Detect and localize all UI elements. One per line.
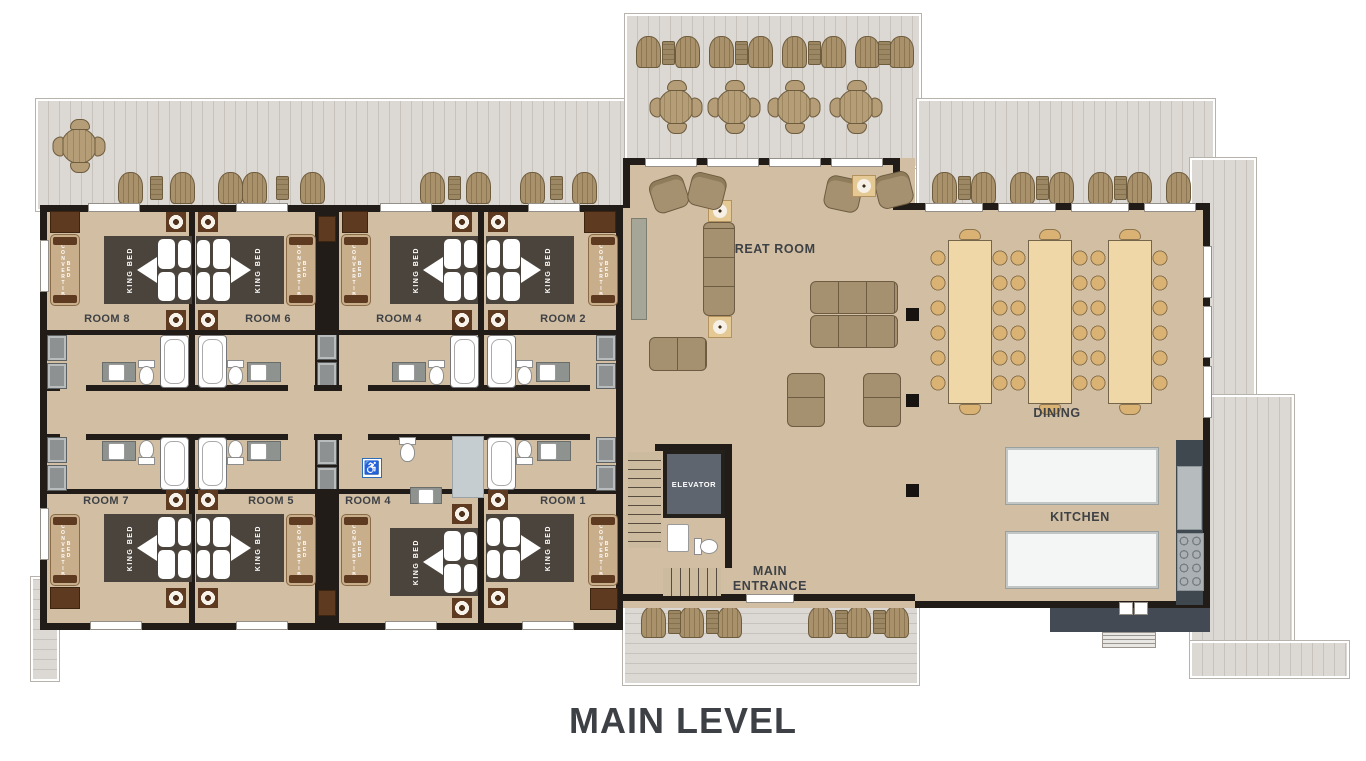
convertible-bed-label: CONVERTIBLE BED bbox=[60, 244, 71, 296]
closet bbox=[47, 437, 67, 463]
dresser bbox=[590, 588, 618, 610]
loveseat bbox=[649, 337, 707, 371]
sink bbox=[418, 489, 434, 504]
round-table bbox=[838, 89, 874, 125]
mattress: KING BED bbox=[232, 236, 284, 304]
column bbox=[906, 394, 919, 407]
window bbox=[385, 621, 437, 630]
nightstand-lamp bbox=[452, 212, 472, 232]
nightstand-lamp bbox=[166, 490, 186, 510]
floor-plan: KING BED CONVERTIBLE BED ROOM 8 KING BED… bbox=[0, 0, 1366, 761]
dining-table bbox=[1028, 240, 1072, 404]
king-bed: KING BED bbox=[196, 236, 284, 304]
deck-chair bbox=[725, 80, 745, 91]
nightstand-lamp bbox=[488, 490, 508, 510]
adirondack-chair bbox=[572, 172, 597, 204]
adirondack-chair bbox=[679, 606, 704, 638]
closet bbox=[317, 334, 337, 360]
pillows bbox=[196, 236, 211, 304]
main-entrance-line1: MAIN bbox=[753, 564, 787, 578]
convertible-bed-label: CONVERTIBLE BED bbox=[598, 244, 609, 296]
king-bed-label: KING BED bbox=[413, 539, 420, 585]
door-gap bbox=[342, 434, 368, 440]
closet bbox=[596, 335, 616, 361]
dining-chair bbox=[1039, 229, 1061, 240]
stairs bbox=[663, 568, 721, 596]
closet bbox=[596, 363, 616, 389]
side-table bbox=[706, 610, 719, 634]
closet bbox=[47, 335, 67, 361]
side-table bbox=[1114, 176, 1127, 200]
round-table bbox=[776, 89, 812, 125]
blanket-fold bbox=[521, 257, 541, 283]
blanket-fold bbox=[423, 549, 443, 575]
deck-chair bbox=[847, 80, 867, 91]
convertible-bed: CONVERTIBLE BED bbox=[588, 514, 618, 586]
pillows bbox=[177, 514, 192, 582]
king-bed: KING BED bbox=[486, 236, 574, 304]
window bbox=[236, 203, 288, 212]
adirondack-chair bbox=[1127, 172, 1152, 204]
sofa bbox=[810, 315, 898, 348]
sofa bbox=[810, 281, 898, 314]
nightstand-lamp bbox=[452, 598, 472, 618]
side-table bbox=[735, 41, 748, 65]
side-table bbox=[662, 41, 675, 65]
window bbox=[998, 203, 1056, 212]
pillows bbox=[196, 514, 211, 582]
window bbox=[90, 621, 142, 630]
side-table bbox=[1036, 176, 1049, 200]
toilet bbox=[228, 366, 243, 385]
blanket-fold bbox=[521, 535, 541, 561]
door-gap bbox=[288, 434, 314, 440]
column bbox=[906, 484, 919, 497]
blanket-fold bbox=[231, 257, 251, 283]
convertible-bed: CONVERTIBLE BED bbox=[341, 234, 371, 306]
bathtub bbox=[487, 335, 516, 388]
adirondack-chair bbox=[466, 172, 491, 204]
nightstand-lamp bbox=[488, 310, 508, 330]
roll-in-shower bbox=[452, 436, 484, 498]
wall bbox=[915, 601, 1210, 608]
room-label: ROOM 2 bbox=[540, 313, 586, 325]
nightstand-lamp bbox=[198, 212, 218, 232]
sink bbox=[540, 443, 557, 460]
adirondack-chair bbox=[821, 36, 846, 68]
window bbox=[1203, 366, 1212, 418]
round-table-set bbox=[707, 80, 761, 134]
deck-chair bbox=[750, 98, 761, 118]
main-entrance-line2: ENTRANCE bbox=[733, 579, 807, 593]
king-bed-label: KING BED bbox=[127, 525, 134, 571]
pillows bbox=[463, 528, 478, 596]
nightstand-lamp bbox=[198, 310, 218, 330]
adirondack-chair bbox=[1088, 172, 1113, 204]
sink bbox=[250, 443, 267, 460]
wc-sink bbox=[667, 524, 689, 552]
adirondack-chair bbox=[717, 606, 742, 638]
mattress: KING BED bbox=[390, 236, 442, 304]
king-bed: KING BED bbox=[196, 514, 284, 582]
convertible-bed: CONVERTIBLE BED bbox=[50, 514, 80, 586]
wc-toilet bbox=[700, 539, 718, 554]
toilet bbox=[139, 366, 154, 385]
adirondack-chair bbox=[932, 172, 957, 204]
dresser bbox=[318, 216, 336, 242]
dining-chair bbox=[1119, 404, 1141, 415]
side-table bbox=[835, 610, 848, 634]
window bbox=[40, 508, 49, 560]
room-label: ROOM 4 bbox=[345, 495, 391, 507]
main-entrance-label: MAINENTRANCE bbox=[733, 564, 807, 594]
pillows bbox=[486, 236, 501, 304]
nightstand-lamp bbox=[198, 588, 218, 608]
nightstand-lamp bbox=[166, 212, 186, 232]
deck-chair bbox=[872, 98, 883, 118]
wall bbox=[623, 158, 630, 208]
round-table-set bbox=[52, 119, 106, 173]
closet bbox=[47, 363, 67, 389]
side-table bbox=[958, 176, 971, 200]
mattress: KING BED bbox=[104, 514, 156, 582]
appliance bbox=[1177, 466, 1202, 530]
pillows bbox=[486, 514, 501, 582]
nightstand-lamp bbox=[452, 310, 472, 330]
convertible-bed-label: CONVERTIBLE BED bbox=[60, 524, 71, 576]
dining-chairs bbox=[930, 246, 946, 396]
adirondack-chair bbox=[808, 606, 833, 638]
blanket-fold bbox=[231, 535, 251, 561]
adirondack-chair bbox=[748, 36, 773, 68]
room-label: ROOM 8 bbox=[84, 313, 130, 325]
wall bbox=[46, 330, 617, 335]
nightstand-lamp bbox=[452, 504, 472, 524]
duvet bbox=[501, 236, 522, 304]
nightstand-lamp bbox=[488, 212, 508, 232]
king-bed-label: KING BED bbox=[545, 247, 552, 293]
toilet bbox=[429, 366, 444, 385]
elevator: ELEVATOR bbox=[663, 450, 725, 518]
wheelchair-icon: ♿ bbox=[362, 458, 382, 478]
bathtub bbox=[198, 437, 227, 490]
convertible-bed-label: CONVERTIBLE BED bbox=[351, 524, 362, 576]
window bbox=[707, 158, 759, 167]
mattress: KING BED bbox=[522, 514, 574, 582]
wall bbox=[46, 385, 617, 391]
dining-chairs bbox=[1152, 246, 1168, 396]
side-table bbox=[150, 176, 163, 200]
round-table-set bbox=[649, 80, 703, 134]
deck-chair bbox=[768, 98, 779, 118]
adirondack-chair bbox=[242, 172, 267, 204]
deck-chair bbox=[650, 98, 661, 118]
deck-southeast bbox=[1190, 641, 1349, 678]
adirondack-chair bbox=[884, 606, 909, 638]
king-bed: KING BED bbox=[486, 514, 574, 582]
dining-table bbox=[948, 240, 992, 404]
round-table bbox=[716, 89, 752, 125]
convertible-bed-label: CONVERTIBLE BED bbox=[296, 524, 307, 576]
duvet bbox=[156, 236, 177, 304]
adirondack-chair bbox=[1049, 172, 1074, 204]
window bbox=[88, 203, 140, 212]
bathtub bbox=[487, 437, 516, 490]
floor-title: MAIN LEVEL bbox=[0, 700, 1366, 742]
great-room-label: GREAT ROOM bbox=[724, 242, 815, 256]
deck-chair bbox=[667, 123, 687, 134]
nightstand-lamp bbox=[198, 490, 218, 510]
closet bbox=[317, 439, 337, 465]
dining-table bbox=[1108, 240, 1152, 404]
column bbox=[906, 308, 919, 321]
deck-chair bbox=[667, 80, 687, 91]
cooktop bbox=[1177, 533, 1204, 591]
convertible-bed-label: CONVERTIBLE BED bbox=[598, 524, 609, 576]
dining-label: DINING bbox=[1033, 406, 1080, 420]
closet bbox=[596, 437, 616, 463]
sink bbox=[398, 364, 415, 381]
adirondack-chair bbox=[520, 172, 545, 204]
king-bed-label: KING BED bbox=[545, 525, 552, 571]
mattress: KING BED bbox=[232, 514, 284, 582]
king-bed-label: KING BED bbox=[413, 247, 420, 293]
pillows bbox=[177, 236, 192, 304]
toilet bbox=[516, 457, 533, 465]
wall bbox=[46, 434, 617, 440]
kitchen-door bbox=[1119, 602, 1133, 615]
deck-chair bbox=[810, 98, 821, 118]
sofa bbox=[703, 222, 735, 316]
deck-chair bbox=[692, 98, 703, 118]
dresser bbox=[342, 211, 368, 233]
bathtub bbox=[160, 335, 189, 388]
convertible-bed: CONVERTIBLE BED bbox=[341, 514, 371, 586]
king-bed-label: KING BED bbox=[255, 525, 262, 571]
nightstand-lamp bbox=[166, 310, 186, 330]
deck-chair bbox=[725, 123, 745, 134]
room-label: ROOM 1 bbox=[540, 495, 586, 507]
door-gap bbox=[342, 385, 368, 391]
convertible-bed-label: CONVERTIBLE BED bbox=[296, 244, 307, 296]
adirondack-chair bbox=[420, 172, 445, 204]
deck-chair bbox=[70, 162, 90, 173]
dining-chair bbox=[959, 404, 981, 415]
window bbox=[522, 621, 574, 630]
adirondack-chair bbox=[675, 36, 700, 68]
dresser bbox=[318, 590, 336, 616]
lamp-table bbox=[708, 316, 732, 338]
adirondack-chair bbox=[782, 36, 807, 68]
adirondack-chair bbox=[846, 606, 871, 638]
toilet bbox=[400, 443, 415, 462]
door-gap bbox=[288, 385, 314, 391]
blanket-fold bbox=[137, 535, 157, 561]
armchair bbox=[787, 373, 825, 427]
round-table bbox=[658, 89, 694, 125]
prep-table bbox=[1006, 448, 1158, 504]
king-bed: KING BED bbox=[390, 528, 478, 596]
side-table bbox=[550, 176, 563, 200]
wall bbox=[46, 489, 617, 494]
adirondack-chair bbox=[118, 172, 143, 204]
adirondack-chair bbox=[300, 172, 325, 204]
duvet bbox=[442, 528, 463, 596]
kitchen-door bbox=[1134, 602, 1148, 615]
duvet bbox=[211, 236, 232, 304]
king-bed: KING BED bbox=[104, 236, 192, 304]
window bbox=[40, 240, 49, 292]
entrance-door bbox=[746, 594, 794, 603]
convertible-bed: CONVERTIBLE BED bbox=[286, 514, 316, 586]
sink bbox=[108, 364, 125, 381]
blanket-fold bbox=[423, 257, 443, 283]
deck-chair bbox=[830, 98, 841, 118]
window bbox=[1071, 203, 1129, 212]
armchair bbox=[863, 373, 901, 427]
king-bed: KING BED bbox=[104, 514, 192, 582]
duvet bbox=[442, 236, 463, 304]
window bbox=[528, 203, 580, 212]
duvet bbox=[211, 514, 232, 582]
dresser bbox=[50, 587, 80, 609]
closet bbox=[47, 465, 67, 491]
bathtub bbox=[450, 335, 479, 388]
window bbox=[769, 158, 821, 167]
toilet bbox=[227, 457, 244, 465]
lamp-table bbox=[852, 175, 876, 197]
adirondack-chair bbox=[636, 36, 661, 68]
side-table bbox=[448, 176, 461, 200]
adirondack-chair bbox=[889, 36, 914, 68]
console-table bbox=[631, 218, 647, 320]
room-label: ROOM 6 bbox=[245, 313, 291, 325]
bathtub bbox=[160, 437, 189, 490]
convertible-bed: CONVERTIBLE BED bbox=[50, 234, 80, 306]
toilet bbox=[517, 366, 532, 385]
room-label: ROOM 7 bbox=[83, 495, 129, 507]
convertible-bed-label: CONVERTIBLE BED bbox=[351, 244, 362, 296]
mattress: KING BED bbox=[390, 528, 442, 596]
window bbox=[645, 158, 697, 167]
king-bed: KING BED bbox=[390, 236, 478, 304]
pillows bbox=[463, 236, 478, 304]
room-label: ROOM 5 bbox=[248, 495, 294, 507]
side-table bbox=[873, 610, 886, 634]
adirondack-chair bbox=[1010, 172, 1035, 204]
king-bed-label: KING BED bbox=[127, 247, 134, 293]
convertible-bed: CONVERTIBLE BED bbox=[286, 234, 316, 306]
mattress: KING BED bbox=[522, 236, 574, 304]
room-label: ROOM 4 bbox=[376, 313, 422, 325]
dining-chairs bbox=[1090, 246, 1106, 396]
king-bed-label: KING BED bbox=[255, 247, 262, 293]
prep-table bbox=[1006, 532, 1158, 588]
dresser bbox=[50, 211, 80, 233]
adirondack-chair bbox=[855, 36, 880, 68]
adirondack-chair bbox=[1166, 172, 1191, 204]
toilet bbox=[138, 457, 155, 465]
dresser bbox=[584, 211, 616, 233]
steps bbox=[1102, 632, 1156, 648]
window bbox=[1144, 203, 1196, 212]
mattress: KING BED bbox=[104, 236, 156, 304]
deck-chair bbox=[70, 119, 90, 130]
adirondack-chair bbox=[170, 172, 195, 204]
dining-chair bbox=[1119, 229, 1141, 240]
deck-chair bbox=[708, 98, 719, 118]
side-table bbox=[808, 41, 821, 65]
side-table bbox=[668, 610, 681, 634]
deck-chair bbox=[95, 137, 106, 157]
side-table bbox=[878, 41, 891, 65]
adirondack-chair bbox=[641, 606, 666, 638]
window bbox=[925, 203, 983, 212]
dining-chairs bbox=[1010, 246, 1026, 396]
sink bbox=[250, 364, 267, 381]
blanket-fold bbox=[137, 257, 157, 283]
round-table bbox=[61, 128, 97, 164]
round-table-set bbox=[829, 80, 883, 134]
window bbox=[380, 203, 432, 212]
kitchen-label: KITCHEN bbox=[1050, 510, 1110, 524]
convertible-bed: CONVERTIBLE BED bbox=[588, 234, 618, 306]
window bbox=[831, 158, 883, 167]
sink bbox=[108, 443, 125, 460]
sink bbox=[539, 364, 556, 381]
deck-chair bbox=[785, 123, 805, 134]
bathtub bbox=[198, 335, 227, 388]
duvet bbox=[501, 514, 522, 582]
closet bbox=[596, 465, 616, 491]
adirondack-chair bbox=[971, 172, 996, 204]
adirondack-chair bbox=[218, 172, 243, 204]
window bbox=[1203, 246, 1212, 298]
nightstand-lamp bbox=[166, 588, 186, 608]
nightstand-lamp bbox=[488, 588, 508, 608]
deck-chair bbox=[785, 80, 805, 91]
dining-chairs bbox=[1072, 246, 1088, 396]
window bbox=[1203, 306, 1212, 358]
dining-chairs bbox=[992, 246, 1008, 396]
side-table bbox=[276, 176, 289, 200]
elevator-label: ELEVATOR bbox=[672, 480, 716, 489]
deck-chair bbox=[847, 123, 867, 134]
deck-chair bbox=[53, 137, 64, 157]
wall bbox=[725, 451, 732, 568]
dining-chair bbox=[959, 229, 981, 240]
duvet bbox=[156, 514, 177, 582]
round-table-set bbox=[767, 80, 821, 134]
stairs bbox=[628, 452, 661, 548]
adirondack-chair bbox=[709, 36, 734, 68]
window bbox=[236, 621, 288, 630]
